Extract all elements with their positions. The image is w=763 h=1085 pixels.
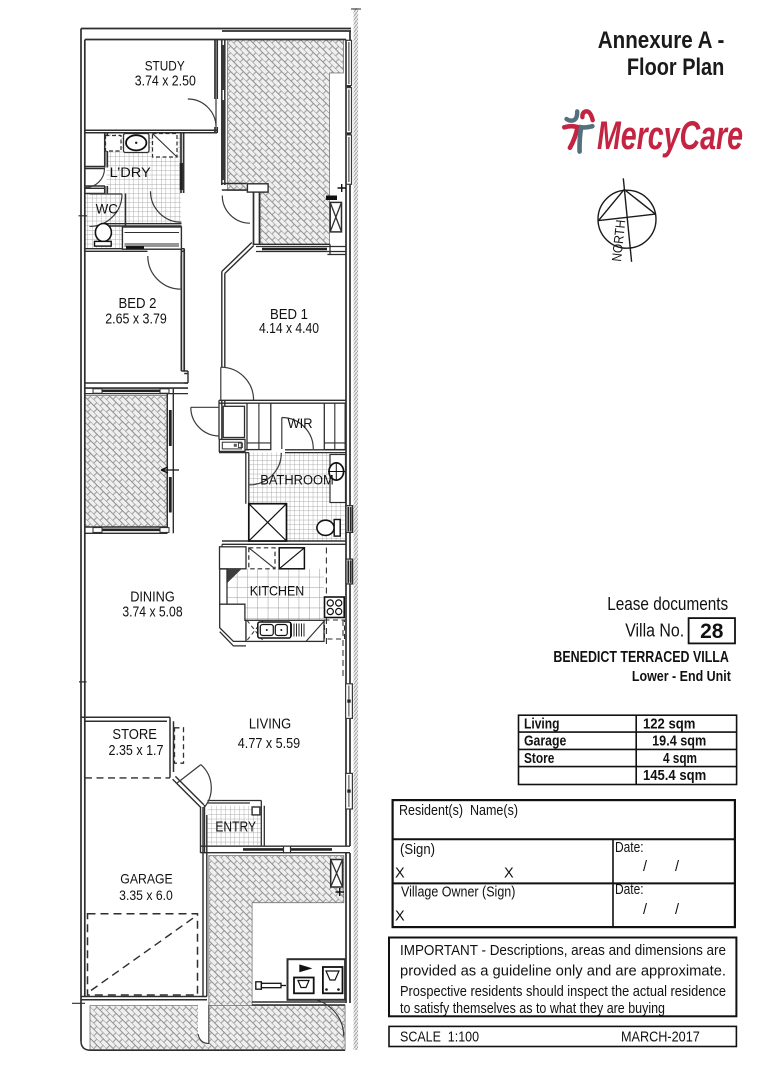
svg-text:X: X — [395, 909, 405, 925]
svg-text:Floor Plan: Floor Plan — [627, 54, 724, 81]
svg-text:STORE: STORE — [112, 727, 157, 743]
svg-text:Resident(s) Name(s): Resident(s) Name(s) — [399, 803, 518, 819]
svg-text:Villa No.: Villa No. — [625, 620, 684, 641]
svg-text:Prospective residents should i: Prospective residents should inspect the… — [400, 983, 726, 1000]
svg-text:to satisfy themselves as to wh: to satisfy themselves as to what they ar… — [400, 1000, 665, 1017]
svg-text:4.77 x 5.59: 4.77 x 5.59 — [238, 736, 300, 752]
svg-text:145.4 sqm: 145.4 sqm — [643, 767, 706, 784]
svg-text:3.74 x 2.50: 3.74 x 2.50 — [135, 74, 196, 90]
svg-text:ENTRY: ENTRY — [215, 820, 256, 836]
svg-text:WC: WC — [96, 200, 118, 216]
svg-text:MARCH-2017: MARCH-2017 — [621, 1029, 700, 1046]
svg-text:WIR: WIR — [288, 415, 313, 431]
svg-text:BENEDICT TERRACED VILLA: BENEDICT TERRACED VILLA — [553, 649, 729, 666]
svg-text:L’DRY: L’DRY — [110, 165, 151, 180]
svg-text:provided as a guideline only a: provided as a guideline only and are app… — [400, 963, 726, 980]
svg-text:3.35 x 6.0: 3.35 x 6.0 — [119, 887, 173, 903]
svg-text:GARAGE: GARAGE — [120, 870, 172, 886]
svg-text:Village Owner (Sign): Village Owner (Sign) — [401, 885, 515, 901]
svg-text:STUDY: STUDY — [145, 58, 186, 74]
svg-text:DINING: DINING — [130, 590, 175, 606]
svg-text:19.4 sqm: 19.4 sqm — [652, 733, 706, 750]
svg-text:Store: Store — [524, 750, 554, 767]
svg-text:4.14 x 4.40: 4.14 x 4.40 — [259, 321, 319, 337]
svg-text:Garage: Garage — [524, 733, 566, 750]
svg-text:(Sign): (Sign) — [400, 842, 435, 858]
svg-text:BED 2: BED 2 — [119, 296, 157, 312]
svg-text:Date:: Date: — [615, 840, 644, 856]
svg-text:IMPORTANT - Descriptions, area: IMPORTANT - Descriptions, areas and dime… — [400, 942, 726, 959]
svg-text:2.35 x 1.7: 2.35 x 1.7 — [109, 743, 164, 759]
svg-text:122 sqm: 122 sqm — [643, 715, 695, 732]
svg-text:MercyCare: MercyCare — [597, 114, 743, 158]
svg-text:X: X — [395, 866, 405, 882]
svg-text:3.74 x 5.08: 3.74 x 5.08 — [122, 605, 182, 621]
svg-text:4 sqm: 4 sqm — [663, 750, 697, 767]
svg-text:Lower - End Unit: Lower - End Unit — [632, 669, 731, 685]
svg-text:2.65 x 3.79: 2.65 x 3.79 — [105, 312, 167, 328]
svg-text:KITCHEN: KITCHEN — [250, 583, 305, 599]
svg-text:Annexure A -: Annexure A - — [598, 27, 725, 54]
svg-text:SCALE 1:100: SCALE 1:100 — [400, 1029, 479, 1046]
svg-text:LIVING: LIVING — [249, 717, 291, 733]
svg-text:28: 28 — [700, 620, 724, 643]
svg-text:Lease documents: Lease documents — [607, 593, 728, 614]
svg-text:BATHROOM: BATHROOM — [260, 473, 333, 488]
svg-text:Date:: Date: — [615, 882, 644, 898]
svg-text:Living: Living — [524, 715, 560, 732]
svg-text:X: X — [504, 866, 514, 882]
